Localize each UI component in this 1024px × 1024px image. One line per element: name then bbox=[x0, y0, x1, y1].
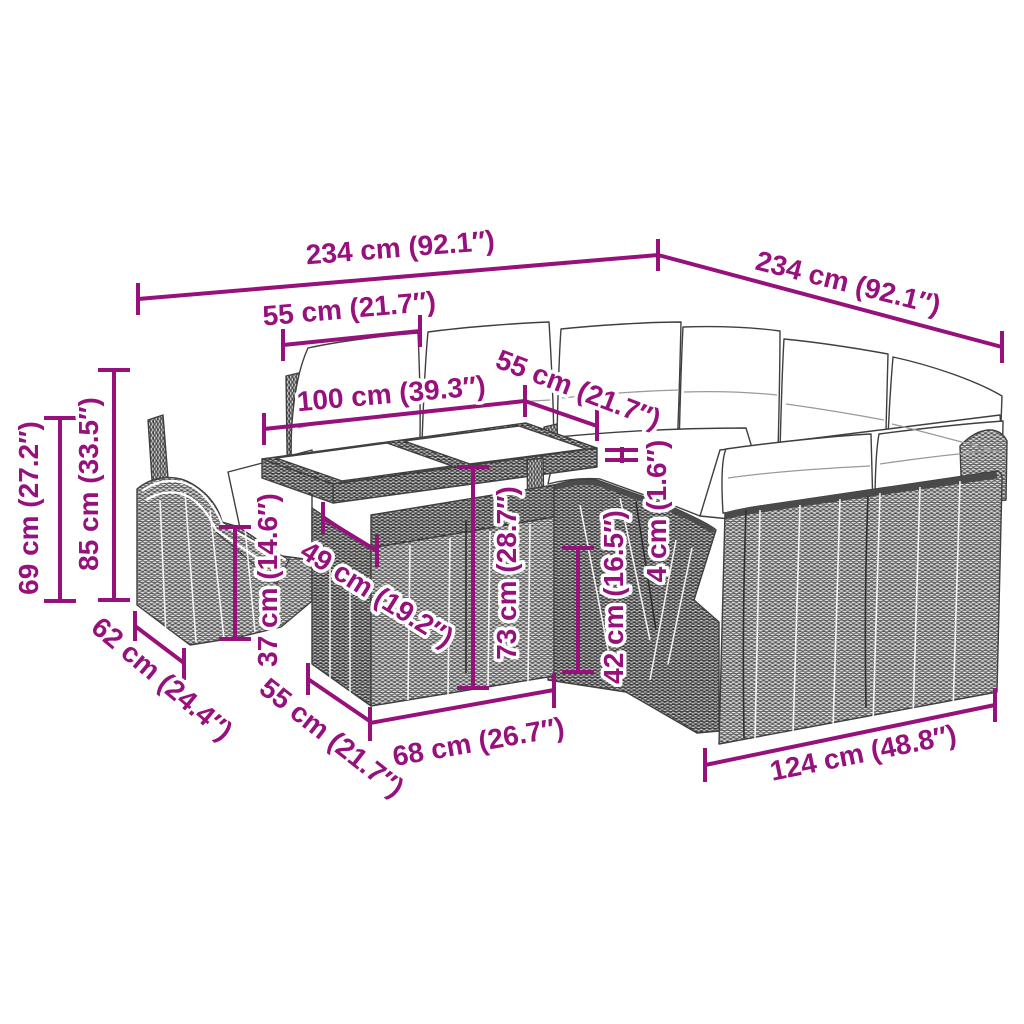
svg-text:69 cm (27.2″): 69 cm (27.2″) bbox=[13, 421, 44, 595]
svg-text:42 cm (16.5″): 42 cm (16.5″) bbox=[598, 510, 629, 684]
svg-text:73 cm (28.7″): 73 cm (28.7″) bbox=[491, 486, 522, 660]
svg-text:4 cm (1.6″): 4 cm (1.6″) bbox=[641, 440, 672, 583]
svg-text:37 cm (14.6″): 37 cm (14.6″) bbox=[252, 493, 283, 667]
svg-text:85 cm (33.5″): 85 cm (33.5″) bbox=[73, 397, 104, 571]
